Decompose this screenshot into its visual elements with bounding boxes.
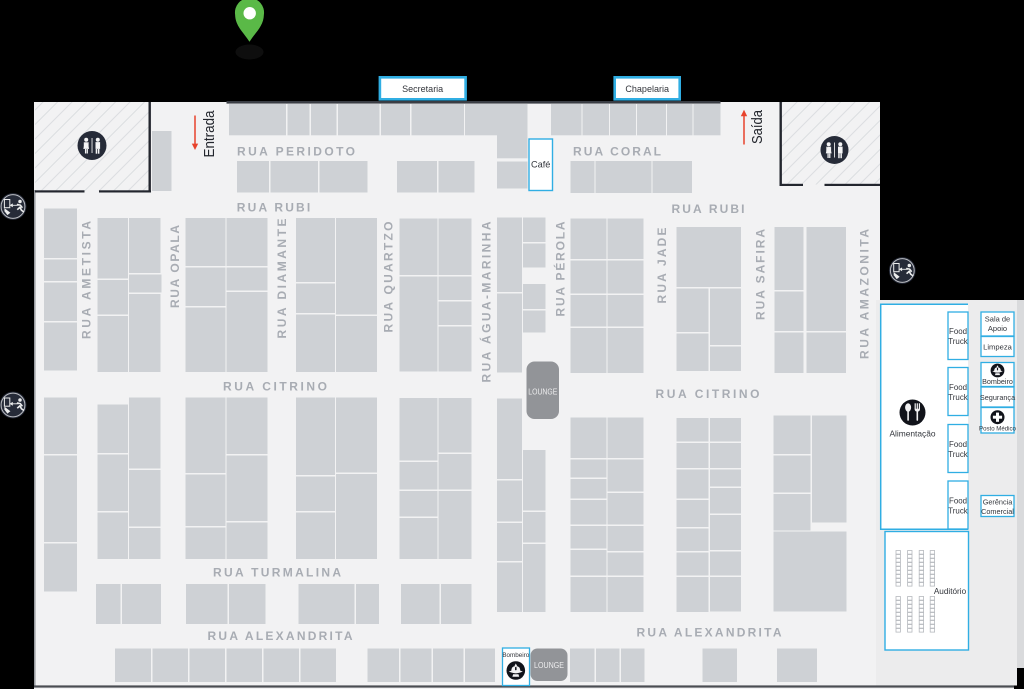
svg-text:Gerência: Gerência	[983, 498, 1014, 507]
svg-text:RUA RUBI: RUA RUBI	[672, 202, 745, 216]
svg-text:Segurança: Segurança	[980, 393, 1016, 402]
svg-text:Food: Food	[949, 440, 967, 449]
svg-text:RUA OPALA: RUA OPALA	[168, 225, 182, 308]
svg-text:Café: Café	[531, 160, 550, 170]
svg-text:Truck: Truck	[948, 507, 967, 516]
svg-text:RUA QUARTZO: RUA QUARTZO	[382, 222, 396, 333]
svg-text:Alimentação: Alimentação	[889, 429, 935, 439]
svg-text:RUA JADE: RUA JADE	[655, 228, 669, 304]
svg-text:Secretaria: Secretaria	[402, 84, 443, 94]
svg-text:RUA ALEXANDRITA: RUA ALEXANDRITA	[637, 626, 782, 640]
svg-text:RUA RUBI: RUA RUBI	[237, 201, 311, 215]
svg-text:RUA AMETISTA: RUA AMETISTA	[80, 221, 94, 339]
svg-text:Food: Food	[949, 497, 967, 506]
svg-text:LOUNGE: LOUNGE	[528, 387, 557, 397]
svg-text:Apoio: Apoio	[988, 324, 1007, 333]
svg-text:Truck: Truck	[948, 393, 967, 402]
svg-text:Saída: Saída	[749, 109, 766, 144]
svg-text:RUA PÉROLA: RUA PÉROLA	[553, 221, 568, 316]
svg-text:Chapelaria: Chapelaria	[625, 84, 669, 94]
svg-text:Food: Food	[949, 327, 967, 336]
svg-text:RUA TURMALINA: RUA TURMALINA	[213, 566, 341, 580]
svg-text:RUA CORAL: RUA CORAL	[573, 145, 661, 159]
svg-text:RUA SAFIRA: RUA SAFIRA	[754, 229, 768, 320]
svg-text:Limpeza: Limpeza	[983, 343, 1012, 352]
svg-text:Bombeiro: Bombeiro	[982, 377, 1013, 386]
svg-text:RUA CITRINO: RUA CITRINO	[656, 387, 760, 401]
svg-text:Sala de: Sala de	[985, 315, 1010, 324]
svg-text:Comercial: Comercial	[981, 507, 1014, 516]
svg-text:Truck: Truck	[948, 337, 967, 346]
svg-text:Posto Médico: Posto Médico	[979, 426, 1017, 433]
svg-text:RUA DIAMANTE: RUA DIAMANTE	[275, 219, 289, 339]
svg-text:RUA ÁGUA-MARINHA: RUA ÁGUA-MARINHA	[479, 221, 494, 382]
svg-text:Food: Food	[949, 383, 967, 392]
svg-text:RUA CITRINO: RUA CITRINO	[223, 380, 327, 394]
svg-text:Bombeiro: Bombeiro	[502, 652, 529, 659]
svg-text:RUA PERIDOTO: RUA PERIDOTO	[237, 145, 355, 159]
svg-text:Truck: Truck	[948, 450, 967, 459]
svg-text:Auditório: Auditório	[934, 587, 967, 596]
svg-text:LOUNGE: LOUNGE	[534, 660, 564, 670]
svg-text:RUA ALEXANDRITA: RUA ALEXANDRITA	[208, 629, 353, 643]
svg-text:Entrada: Entrada	[201, 110, 218, 158]
